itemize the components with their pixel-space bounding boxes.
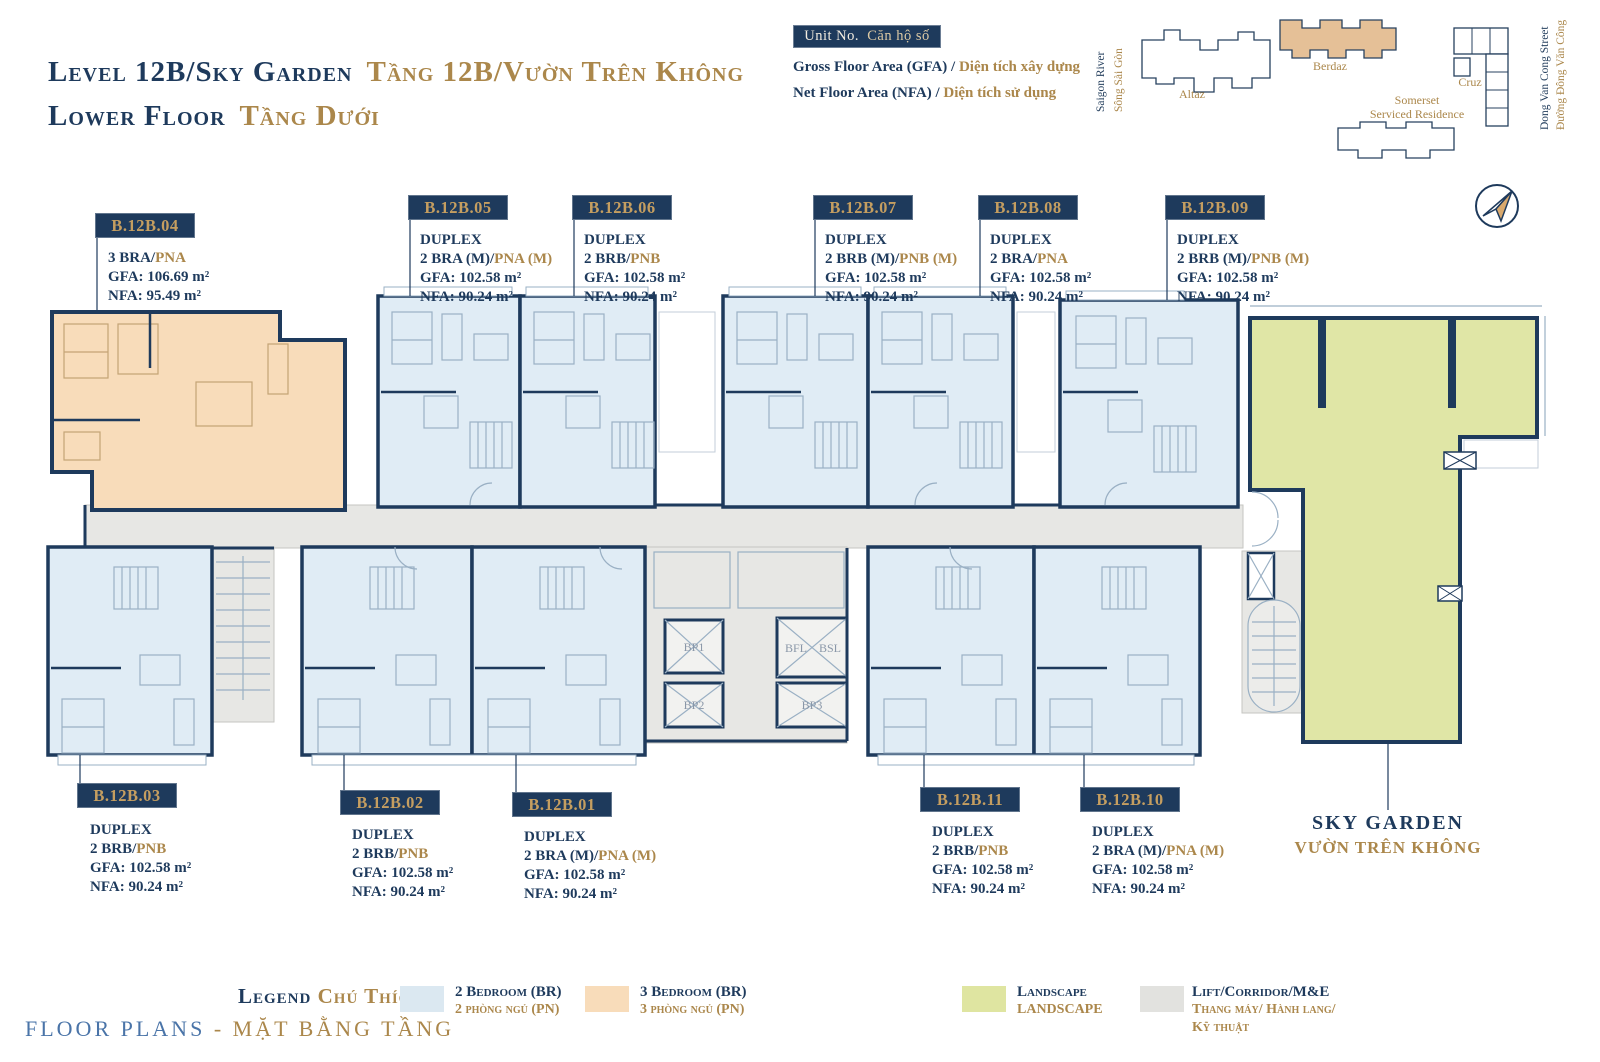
legend-swatch-3br [585,986,629,1012]
lift-shaft-bp1: BP1 [665,620,723,673]
unit-label-b12b08: B.12B.08 [978,195,1078,220]
unit-area-b12b07 [723,296,868,507]
unit-type-en: 2 BRB/ [584,251,630,267]
unit-type-en: 3 BRA/ [108,250,155,266]
site-somerset-label-1: Somerset [1395,93,1440,107]
floorplan-sheet: { "header": { "title_en": "Level 12B/Sky… [0,0,1600,1062]
unit-type-vi: PNA (M) [598,848,656,864]
site-somerset-label-2: Serviced Residence [1370,107,1464,121]
legend-2br-vi: 2 phòng ngủ (PN) [455,1001,562,1019]
unit-nfa: NFA: 90.24 m² [352,883,453,902]
building-altaz [1142,30,1270,92]
sky-garden-label-en: SKY GARDEN [1312,812,1464,835]
unit-duplex: DUPLEX [584,231,685,250]
unit-id: B.12B.08 [994,198,1061,217]
unit-type-vi: PNB [630,251,660,267]
unit-nfa: NFA: 90.24 m² [1177,288,1309,307]
unit-id: B.12B.07 [829,198,896,217]
unit-gfa: GFA: 102.58 m² [584,269,685,288]
legend-item-landscape: Landscape LANDSCAPE [1017,983,1103,1019]
unit-type-vi: PNA [155,250,186,266]
unit-label-b12b03: B.12B.03 [77,783,177,808]
site-cruz-label: Cruz [1458,75,1481,89]
unit-area-b12b10 [1034,547,1200,755]
unit-info-b12b02: DUPLEX 2 BRB/PNB GFA: 102.58 m² NFA: 90.… [352,826,453,902]
unit-info-b12b06: DUPLEX 2 BRB/PNB GFA: 102.58 m² NFA: 90.… [584,231,685,307]
unit-no-key-en: Unit No. [804,28,859,44]
site-altaz-label: Altaz [1179,87,1205,101]
unit-type-vi: PNA [1037,251,1068,267]
legend-item-3br: 3 Bedroom (BR) 3 phòng ngủ (PN) [640,983,747,1019]
unit-id: B.12B.01 [528,795,595,814]
unit-id: B.12B.02 [356,793,423,812]
unit-gfa: GFA: 102.58 m² [420,269,552,288]
unit-duplex: DUPLEX [90,821,191,840]
vent-grille [1444,452,1476,469]
unit-info-b12b05: DUPLEX 2 BRA (M)/PNA (M) GFA: 102.58 m² … [420,231,552,307]
unit-type-en: 2 BRB/ [932,843,978,859]
legend-landscape-en: Landscape [1017,983,1103,1001]
light-shaft [1017,312,1055,452]
unit-label-b12b02: B.12B.02 [340,790,440,815]
unit-area-b12b06 [520,296,655,507]
page-subtitle: Lower FloorTầng Dưới [48,100,380,133]
legend-lift-vi: Thang máy/ Hành lang/ [1192,1001,1336,1019]
lift-shaft-bfl-bsl: BFL BSL [777,618,847,677]
unit-type-en: 2 BRA (M)/ [1092,843,1166,859]
unit-label-b12b01: B.12B.01 [512,792,612,817]
unit-duplex: DUPLEX [524,828,656,847]
unit-gfa: GFA: 102.58 m² [1177,269,1309,288]
unit-id: B.12B.03 [93,786,160,805]
gfa-key-en: Gross Floor Area (GFA) / [793,59,955,75]
unit-gfa: GFA: 102.58 m² [990,269,1091,288]
footer-caption-vi: - MẶT BẰNG TẦNG [214,1016,454,1041]
unit-type-vi: PNB [136,841,166,857]
unit-gfa: GFA: 106.69 m² [108,268,209,287]
unit-type-vi: PNA (M) [1166,843,1224,859]
lift-label-bp1: BP1 [684,640,705,654]
unit-label-b12b09: B.12B.09 [1165,195,1265,220]
nfa-key-vi: Diện tích sử dụng [943,85,1056,101]
unit-gfa: GFA: 102.58 m² [825,269,957,288]
unit-nfa: NFA: 90.24 m² [420,288,552,307]
legend-title-en: Legend [238,984,311,1008]
unit-info-b12b09: DUPLEX 2 BRB (M)/PNB (M) GFA: 102.58 m² … [1177,231,1309,307]
legend-3br-vi: 3 phòng ngủ (PN) [640,1001,747,1019]
lift-label-bp3: BP3 [802,698,823,712]
unit-id: B.12B.04 [111,216,178,235]
unit-gfa: GFA: 102.58 m² [932,861,1033,880]
legend-swatch-2br [400,986,444,1012]
unit-type-en: 2 BRB (M)/ [825,251,899,267]
legend-lift-vi2: Kỹ thuật [1192,1019,1336,1037]
nfa-key-line: Net Floor Area (NFA) / Diện tích sử dụng [793,85,1056,102]
vent-grille [1438,586,1462,601]
gfa-key-line: Gross Floor Area (GFA) / Diện tích xây d… [793,59,1080,76]
site-street-label-en: Dong Van Cong Street [1539,26,1551,130]
unit-no-key-vi: Căn hộ số [867,28,930,44]
unit-type-vi: PNB [978,843,1008,859]
unit-nfa: NFA: 90.24 m² [990,288,1091,307]
unit-nfa: NFA: 90.24 m² [90,878,191,897]
footer-caption-en: FLOOR PLANS [25,1016,205,1041]
sky-garden-label-vi: VƯỜN TRÊN KHÔNG [1295,838,1482,858]
site-river-label-en: Saigon River [1095,51,1107,112]
unit-area-b12b08 [868,296,1013,507]
legend-title: Legend Chú Thích [238,984,423,1009]
unit-nfa: NFA: 90.24 m² [524,885,656,904]
page-subtitle-vi: Tầng Dưới [240,100,380,132]
unit-type-en: 2 BRB (M)/ [1177,251,1251,267]
unit-duplex: DUPLEX [1092,823,1224,842]
lift-label-bsl: BSL [819,641,841,655]
unit-type-en: 2 BRB/ [352,846,398,862]
legend-swatch-landscape [962,986,1006,1012]
unit-info-b12b03: DUPLEX 2 BRB/PNB GFA: 102.58 m² NFA: 90.… [90,821,191,897]
wall-fin [1448,320,1456,408]
unit-id: B.12B.10 [1096,790,1163,809]
unit-type-vi: PNB (M) [1251,251,1309,267]
unit-id: B.12B.11 [937,790,1003,809]
unit-duplex: DUPLEX [1177,231,1309,250]
unit-type-en: 2 BRA/ [990,251,1037,267]
lift-shaft-right [1248,553,1274,599]
unit-label-b12b07: B.12B.07 [813,195,913,220]
legend-item-2br: 2 Bedroom (BR) 2 phòng ngủ (PN) [455,983,562,1019]
unit-duplex: DUPLEX [352,826,453,845]
unit-area-b12b01 [472,547,645,755]
unit-duplex: DUPLEX [990,231,1091,250]
gfa-key-vi: Diện tích xây dựng [959,59,1080,75]
lift-shaft-bp2: BP2 [665,683,723,727]
unit-duplex: DUPLEX [825,231,957,250]
lift-shaft-bp3: BP3 [777,683,847,727]
legend-3br-en: 3 Bedroom (BR) [640,983,747,1001]
unit-gfa: GFA: 102.58 m² [352,864,453,883]
unit-id: B.12B.05 [424,198,491,217]
site-river-label-vi: Sông Sài Gòn [1113,48,1125,112]
unit-duplex: DUPLEX [420,231,552,250]
unit-gfa: GFA: 102.58 m² [524,866,656,885]
nfa-key-en: Net Floor Area (NFA) / [793,85,940,101]
legend-swatch-lift [1140,986,1184,1012]
unit-info-b12b11: DUPLEX 2 BRB/PNB GFA: 102.58 m² NFA: 90.… [932,823,1033,899]
unit-info-b12b01: DUPLEX 2 BRA (M)/PNA (M) GFA: 102.58 m² … [524,828,656,904]
unit-info-b12b08: DUPLEX 2 BRA/PNA GFA: 102.58 m² NFA: 90.… [990,231,1091,307]
unit-nfa: NFA: 95.49 m² [108,287,209,306]
unit-nfa: NFA: 90.24 m² [932,880,1033,899]
unit-type-en: 2 BRA (M)/ [524,848,598,864]
building-somerset [1338,122,1454,158]
unit-label-b12b04: B.12B.04 [95,213,195,238]
unit-duplex: DUPLEX [932,823,1033,842]
unit-label-b12b06: B.12B.06 [572,195,672,220]
unit-type-vi: PNB (M) [899,251,957,267]
staircase-right [1248,600,1300,712]
lift-label-bfl: BFL [785,641,807,655]
legend-2br-en: 2 Bedroom (BR) [455,983,562,1001]
unit-nfa: NFA: 90.24 m² [1092,880,1224,899]
unit-no-key-box: Unit No. Căn hộ số [793,25,941,48]
wall-fin [1318,320,1326,408]
legend-landscape-vi: LANDSCAPE [1017,1001,1103,1019]
page-title: Level 12B/Sky GardenTầng 12B/Vườn Trên K… [48,56,744,89]
unit-area-b12b09 [1060,300,1238,507]
page-title-en: Level 12B/Sky Garden [48,56,353,88]
unit-info-b12b10: DUPLEX 2 BRA (M)/PNA (M) GFA: 102.58 m² … [1092,823,1224,899]
unit-type-en: 2 BRB/ [90,841,136,857]
page-subtitle-en: Lower Floor [48,100,226,132]
unit-gfa: GFA: 102.58 m² [90,859,191,878]
building-berdaz [1280,20,1396,58]
legend-lift-en: Lift/Corridor/M&E [1192,983,1336,1001]
legend-item-lift: Lift/Corridor/M&E Thang máy/ Hành lang/ … [1192,983,1336,1037]
site-key-map: Saigon River Sông Sài Gòn Altaz Berdaz S… [1080,0,1600,245]
unit-id: B.12B.06 [588,198,655,217]
unit-info-b12b04: 3 BRA/PNA GFA: 106.69 m² NFA: 95.49 m² [108,249,209,306]
unit-area-b12b02 [302,547,472,755]
unit-nfa: NFA: 90.24 m² [584,288,685,307]
unit-label-b12b05: B.12B.05 [408,195,508,220]
unit-label-b12b10: B.12B.10 [1080,787,1180,812]
unit-area-b12b05 [378,296,520,507]
unit-area-b12b11 [868,547,1034,755]
compass-icon [1476,185,1518,227]
unit-id: B.12B.09 [1181,198,1248,217]
unit-gfa: GFA: 102.58 m² [1092,861,1224,880]
unit-info-b12b07: DUPLEX 2 BRB (M)/PNB (M) GFA: 102.58 m² … [825,231,957,307]
unit-nfa: NFA: 90.24 m² [825,288,957,307]
light-shaft [659,312,715,452]
unit-area-b12b04 [52,312,345,510]
unit-type-en: 2 BRA (M)/ [420,251,494,267]
unit-label-b12b11: B.12B.11 [920,787,1020,812]
unit-type-vi: PNB [398,846,428,862]
page-title-vi: Tầng 12B/Vườn Trên Không [367,56,745,88]
site-berdaz-label: Berdaz [1313,59,1347,73]
site-street-label-vi: Đường Đông Văn Công [1555,20,1567,130]
lift-label-bp2: BP2 [684,698,705,712]
footer-caption: FLOOR PLANS - MẶT BẰNG TẦNG [25,1016,454,1042]
unit-type-vi: PNA (M) [494,251,552,267]
